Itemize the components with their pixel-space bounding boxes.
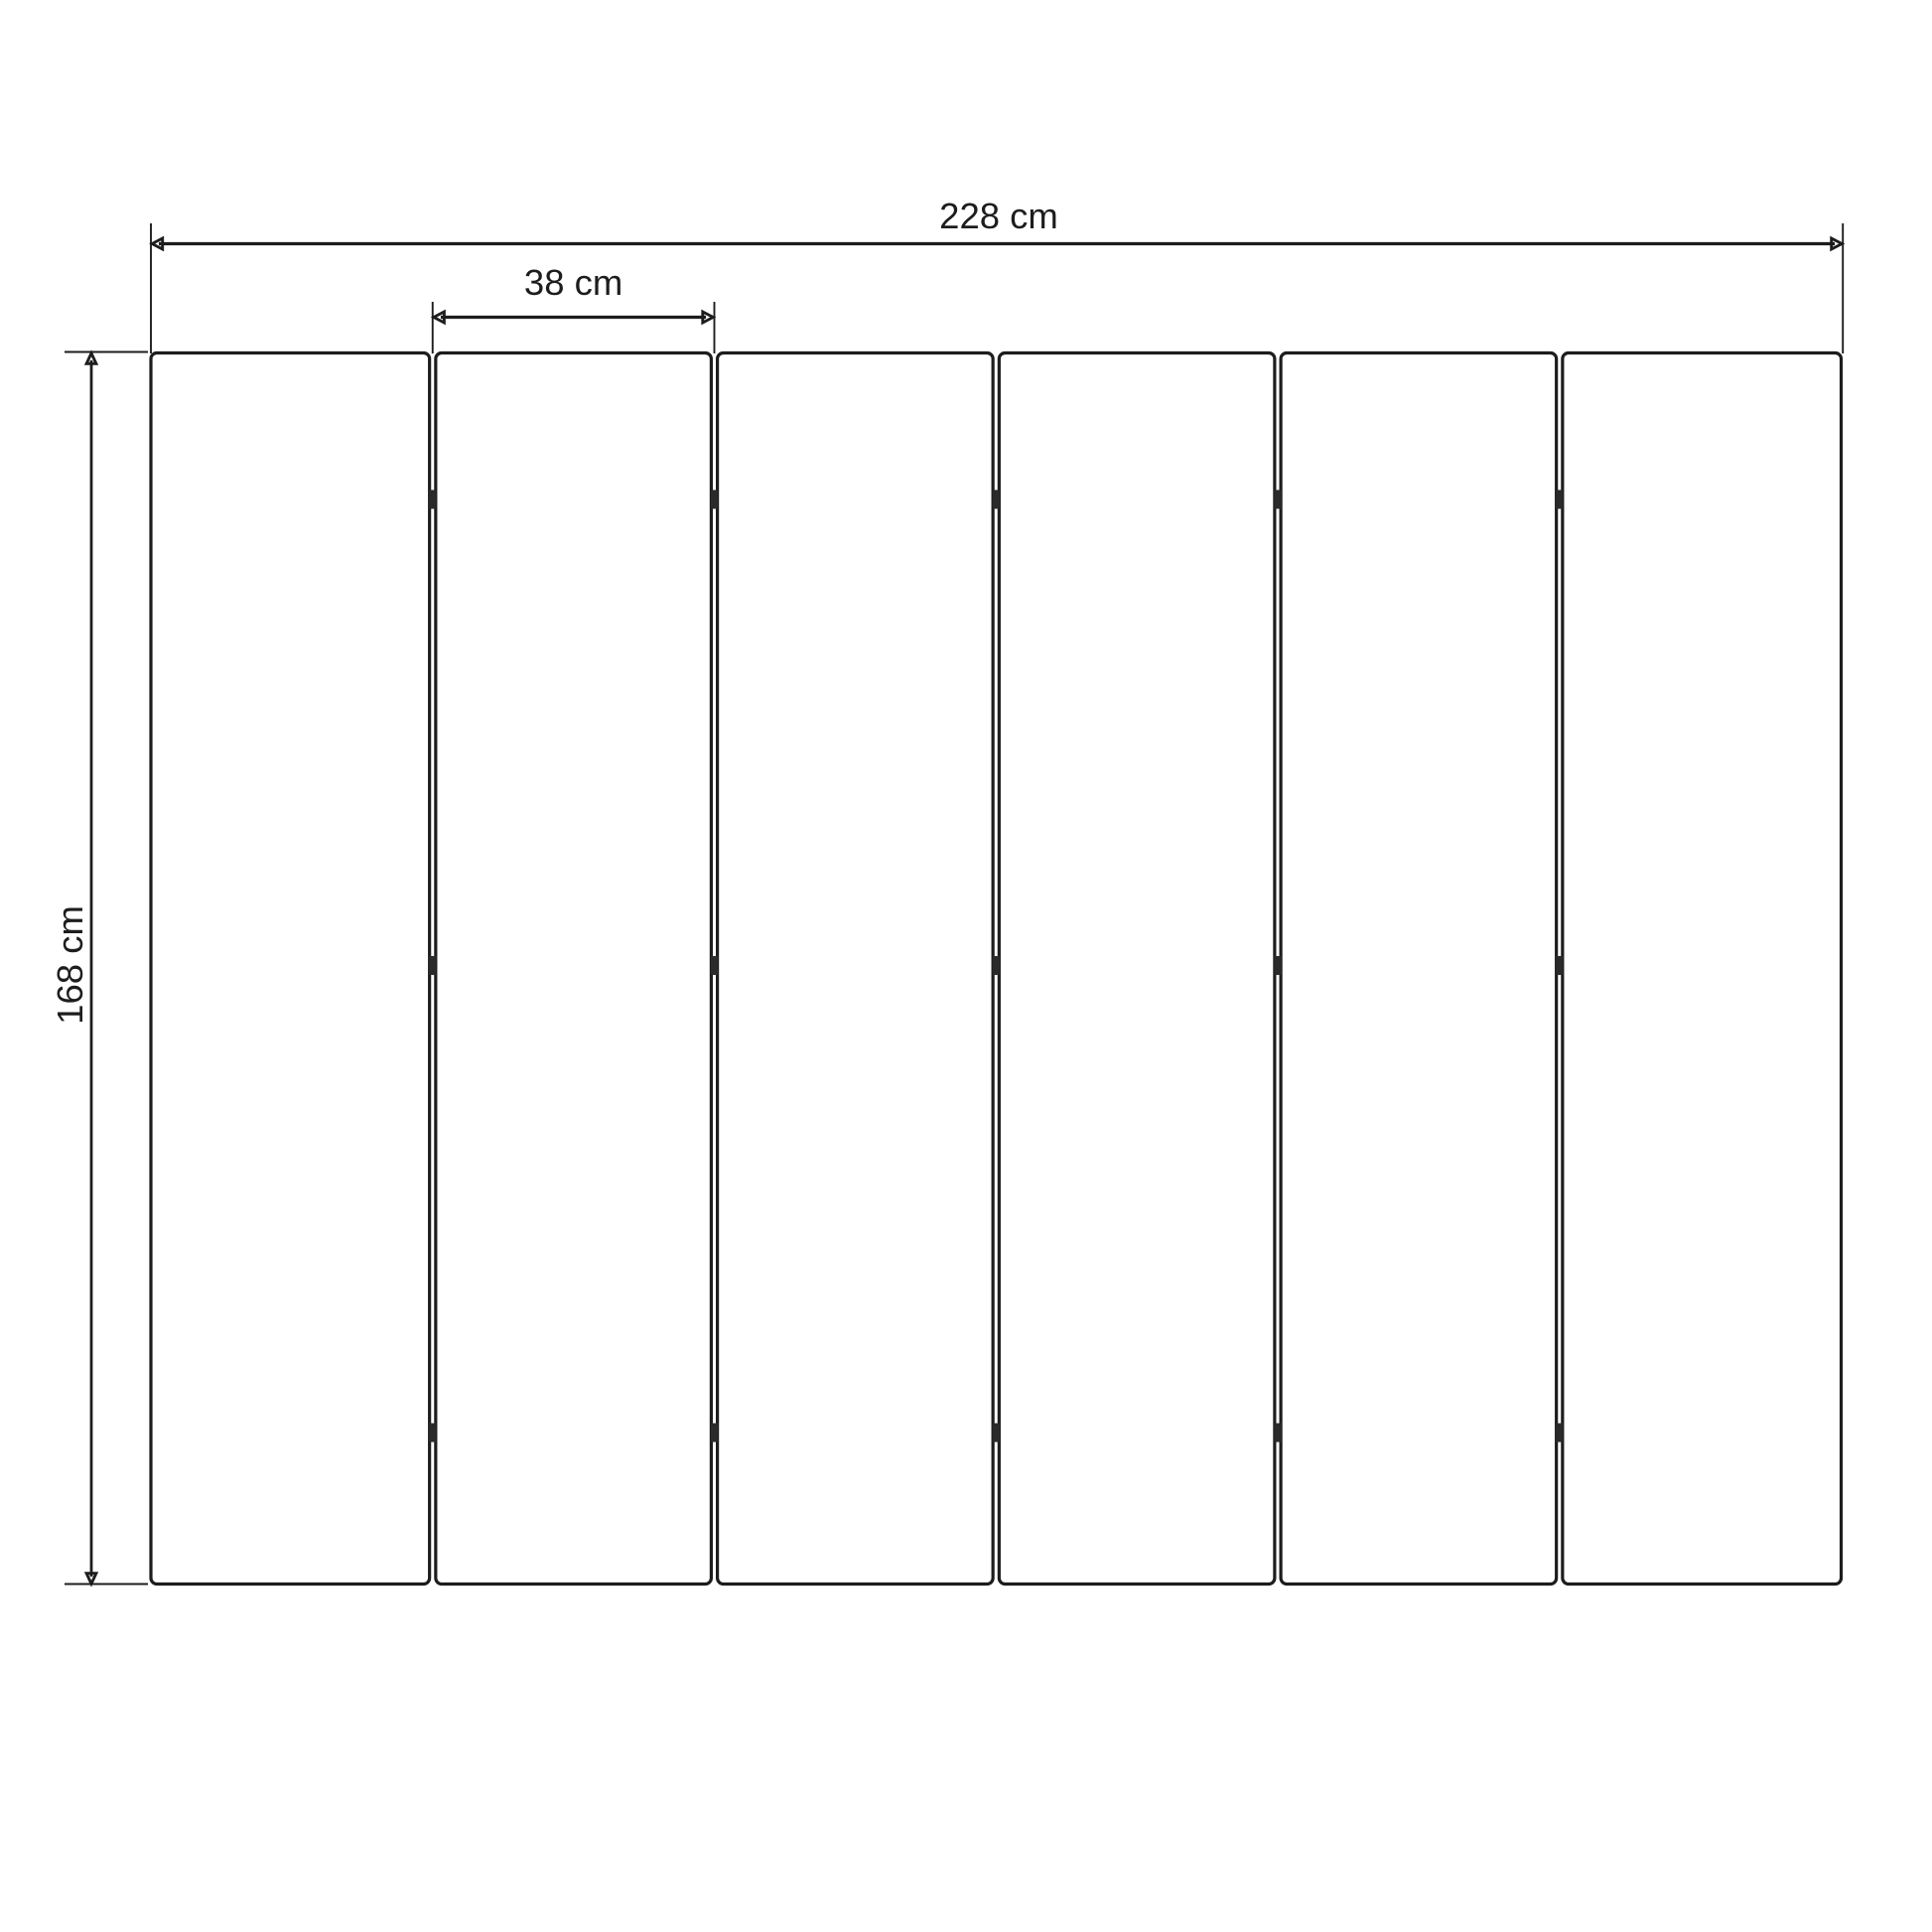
svg-text:168 cm: 168 cm (50, 905, 90, 1025)
svg-text:38 cm: 38 cm (524, 262, 622, 303)
svg-text:228 cm: 228 cm (939, 196, 1058, 236)
